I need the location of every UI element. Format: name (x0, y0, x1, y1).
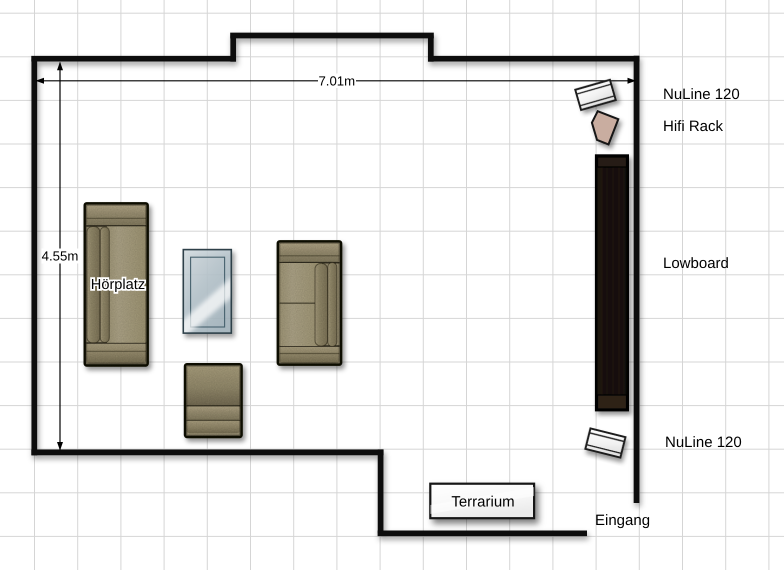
svg-text:Hifi Rack: Hifi Rack (663, 118, 724, 135)
svg-text:Eingang: Eingang (595, 512, 650, 529)
svg-text:Terrarium: Terrarium (451, 494, 514, 511)
svg-text:NuLine 120: NuLine 120 (663, 86, 740, 103)
svg-text:4.55m: 4.55m (42, 249, 79, 264)
svg-text:Lowboard: Lowboard (663, 255, 729, 272)
svg-text:7.01m: 7.01m (318, 73, 355, 88)
svg-text:Hörplatz: Hörplatz (91, 277, 145, 293)
svg-text:NuLine 120: NuLine 120 (665, 434, 742, 451)
